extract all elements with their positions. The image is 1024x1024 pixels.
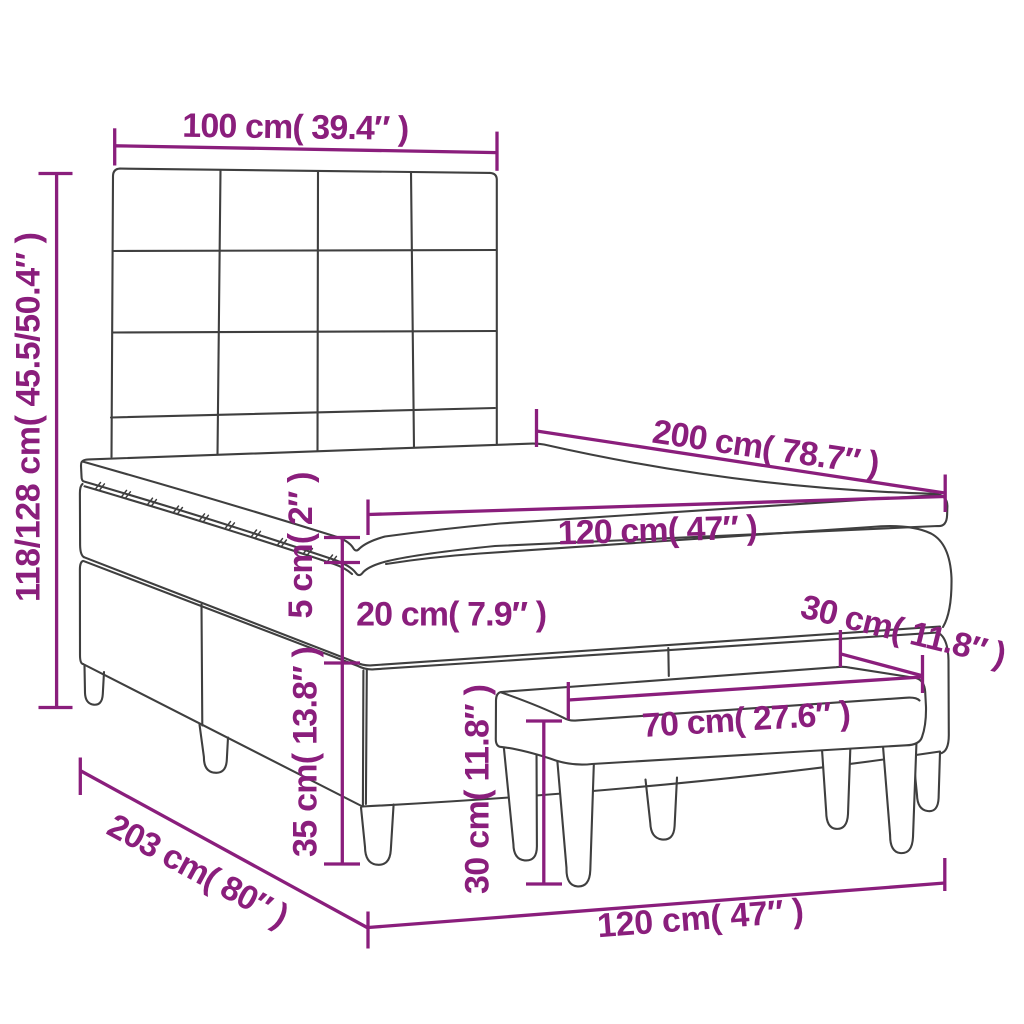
- svg-text:118/128 cm( 45.5/50.4″ ): 118/128 cm( 45.5/50.4″ ): [10, 232, 48, 602]
- svg-text:120 cm( 47″ ): 120 cm( 47″ ): [557, 509, 758, 553]
- svg-text:20 cm( 7.9″ ): 20 cm( 7.9″ ): [356, 595, 547, 633]
- svg-text:35 cm( 13.8″ ): 35 cm( 13.8″ ): [287, 646, 325, 857]
- svg-text:100 cm( 39.4″ ): 100 cm( 39.4″ ): [182, 107, 410, 148]
- svg-text:30 cm( 11.8″ ): 30 cm( 11.8″ ): [459, 684, 497, 894]
- svg-text:5 cm( 2″ ): 5 cm( 2″ ): [282, 472, 320, 619]
